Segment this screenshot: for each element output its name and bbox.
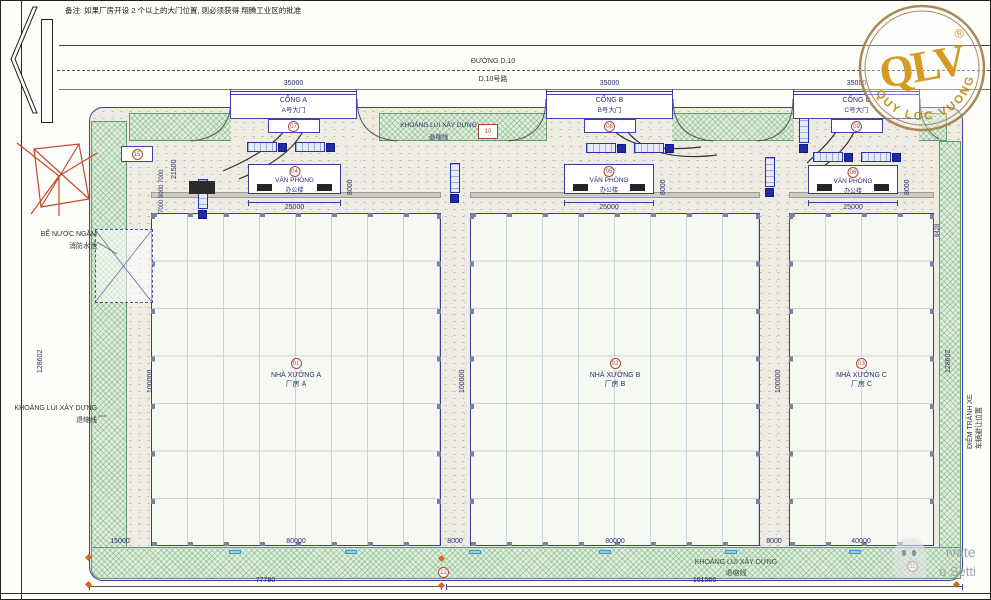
office-b-name-vi: VĂN PHÒNG: [565, 177, 653, 184]
gate-b-name-cn: B号大门: [547, 104, 672, 114]
truck-icon: [295, 142, 337, 153]
loading-dock-icon: [817, 184, 832, 191]
gate-c-ref: 09: [851, 121, 862, 132]
dim-gap-ab: 8000: [430, 538, 480, 545]
loading-dock-icon: [257, 184, 272, 191]
gate-a-name-cn: A号大门: [231, 104, 356, 114]
loading-dock-icon: [317, 184, 332, 191]
watermark-ghost-icon: [894, 538, 926, 578]
gate-b-name-vi: CỔNG B: [547, 97, 672, 104]
loading-dock-icon: [573, 184, 588, 191]
gate-a-width-dim: 35000: [230, 80, 357, 87]
ref-15: 15: [132, 149, 143, 160]
gate-a-ref: 07: [288, 121, 299, 132]
dim-left-block: 15000: [90, 538, 150, 545]
truck-icon: [586, 143, 628, 154]
drain-marker-icon: [849, 550, 861, 554]
drain-marker-icon: [469, 550, 481, 554]
setback-top-ref-box: 10: [478, 124, 498, 139]
warehouse-c-depth-dim: 100000: [775, 370, 782, 393]
right-height-dim: 128602: [945, 350, 952, 373]
topleft-stack-dims: 7000 9000 7000: [159, 170, 165, 213]
qlv-company-stamp: QLV ® QUY LOC VUONG: [844, 0, 991, 146]
office-b-depth-dim: 8000: [660, 179, 667, 195]
office-a-depth-dim: 8000: [347, 179, 354, 195]
office-a-name-vi: VĂN PHÒNG: [249, 177, 340, 184]
watermark-frag-2: o Setti: [939, 564, 976, 579]
left-height-dim: 128602: [37, 350, 44, 373]
site-plan-drawing: 备注: 如果厂房开设 2 个以上的大门位置, 则必须获得 翔腾工业区的批准 ĐƯ…: [0, 0, 991, 600]
setback-top-ref: 10: [485, 129, 492, 135]
office-a-width-dimline: [248, 202, 341, 203]
office-b-width-dimline: [564, 202, 654, 203]
overall-left-dim: 77780: [89, 577, 442, 584]
office-b: 05 VĂN PHÒNG 办公楼: [564, 164, 654, 194]
misc-dim-8428: 8428: [935, 224, 941, 237]
office-b-width-dim: 25000: [564, 204, 654, 211]
watermark-frag-1: ivate: [946, 544, 976, 560]
office-c: 06 VĂN PHÒNG 办公楼: [808, 165, 898, 194]
water-tank-label-cn: 消防水池: [11, 241, 97, 251]
office-c-ref: 06: [848, 167, 859, 178]
office-a-ref: 04: [289, 166, 300, 177]
gate-a: 35000 CỔNG A A号大门 07: [230, 80, 357, 134]
truck-icon: [813, 152, 855, 163]
office-a-width-dim: 25000: [248, 204, 341, 211]
office-c-width-dimline: [808, 202, 898, 203]
gate-b-ref: 08: [604, 121, 615, 132]
office-c-width-dim: 25000: [808, 204, 898, 211]
water-tank-label-vi: BỂ NƯỚC NGẦM: [11, 231, 97, 238]
gate-b-label-box: CỔNG B B号大门: [546, 94, 673, 119]
gate-a-dimline: [230, 91, 357, 92]
truck-icon: [634, 143, 676, 154]
gate-b: 35000 CỔNG B B号大门 08: [546, 80, 673, 134]
drain-marker-icon: [229, 550, 241, 554]
loading-dock-icon: [630, 184, 645, 191]
drain-marker-icon: [725, 550, 737, 554]
overall-left-dimline: [89, 586, 442, 587]
loading-dock-icon: [874, 184, 889, 191]
avoid-area-label-cn: 车辆避让位置: [974, 394, 984, 449]
topleft-total-dim: 21500: [171, 160, 178, 179]
gate-b-ref-box: 08: [584, 119, 636, 133]
bottom-setback-label-vi: KHOẢNG LÙI XÂY DỰNG: [676, 559, 796, 566]
dim-warehouse-b-width: 80000: [565, 538, 665, 545]
overall-right-dimline: [446, 586, 963, 587]
compass-rose-icon: [17, 143, 97, 216]
label-leader-lines: [97, 242, 117, 416]
truck-icon: [247, 142, 289, 153]
warehouse-b-depth-dim: 100000: [459, 370, 466, 393]
gate-a-label-box: CỔNG A A号大门: [230, 94, 357, 119]
overall-right-dim: 161566: [446, 577, 963, 584]
loading-dock-icon: [189, 181, 215, 194]
drain-marker-icon: [345, 550, 357, 554]
truck-icon: [764, 157, 775, 199]
gate-b-width-dim: 35000: [546, 80, 673, 87]
gate-a-name-vi: CỔNG A: [231, 97, 356, 104]
stamp-rings: QLV ® QUY LOC VUONG: [844, 0, 991, 146]
drain-marker-icon: [599, 550, 611, 554]
truck-icon: [449, 163, 460, 205]
gate-b-dimline: [546, 91, 673, 92]
office-a: 04 VĂN PHÒNG 办公楼: [248, 164, 341, 194]
ref-15-box: 15: [121, 146, 153, 162]
office-c-depth-dim: 8000: [904, 179, 911, 195]
dim-warehouse-a-width: 80000: [246, 538, 346, 545]
truck-icon: [861, 152, 903, 163]
office-b-ref: 05: [604, 166, 615, 177]
left-setback-label-vi: KHOẢNG LÙI XÂY DỰNG: [5, 405, 97, 412]
gate-a-ref-box: 07: [268, 119, 320, 133]
water-tank-diagonals: [96, 231, 151, 301]
dim-gap-bc: 8000: [749, 538, 799, 545]
avoid-area-label: ĐIỂM TRÁNH XE 车辆避让位置: [967, 394, 984, 449]
warehouse-a-depth-dim: 100000: [147, 370, 154, 393]
left-setback-label-cn: 退缩线: [5, 415, 97, 425]
avoid-area-label-vi: ĐIỂM TRÁNH XE: [967, 394, 974, 449]
